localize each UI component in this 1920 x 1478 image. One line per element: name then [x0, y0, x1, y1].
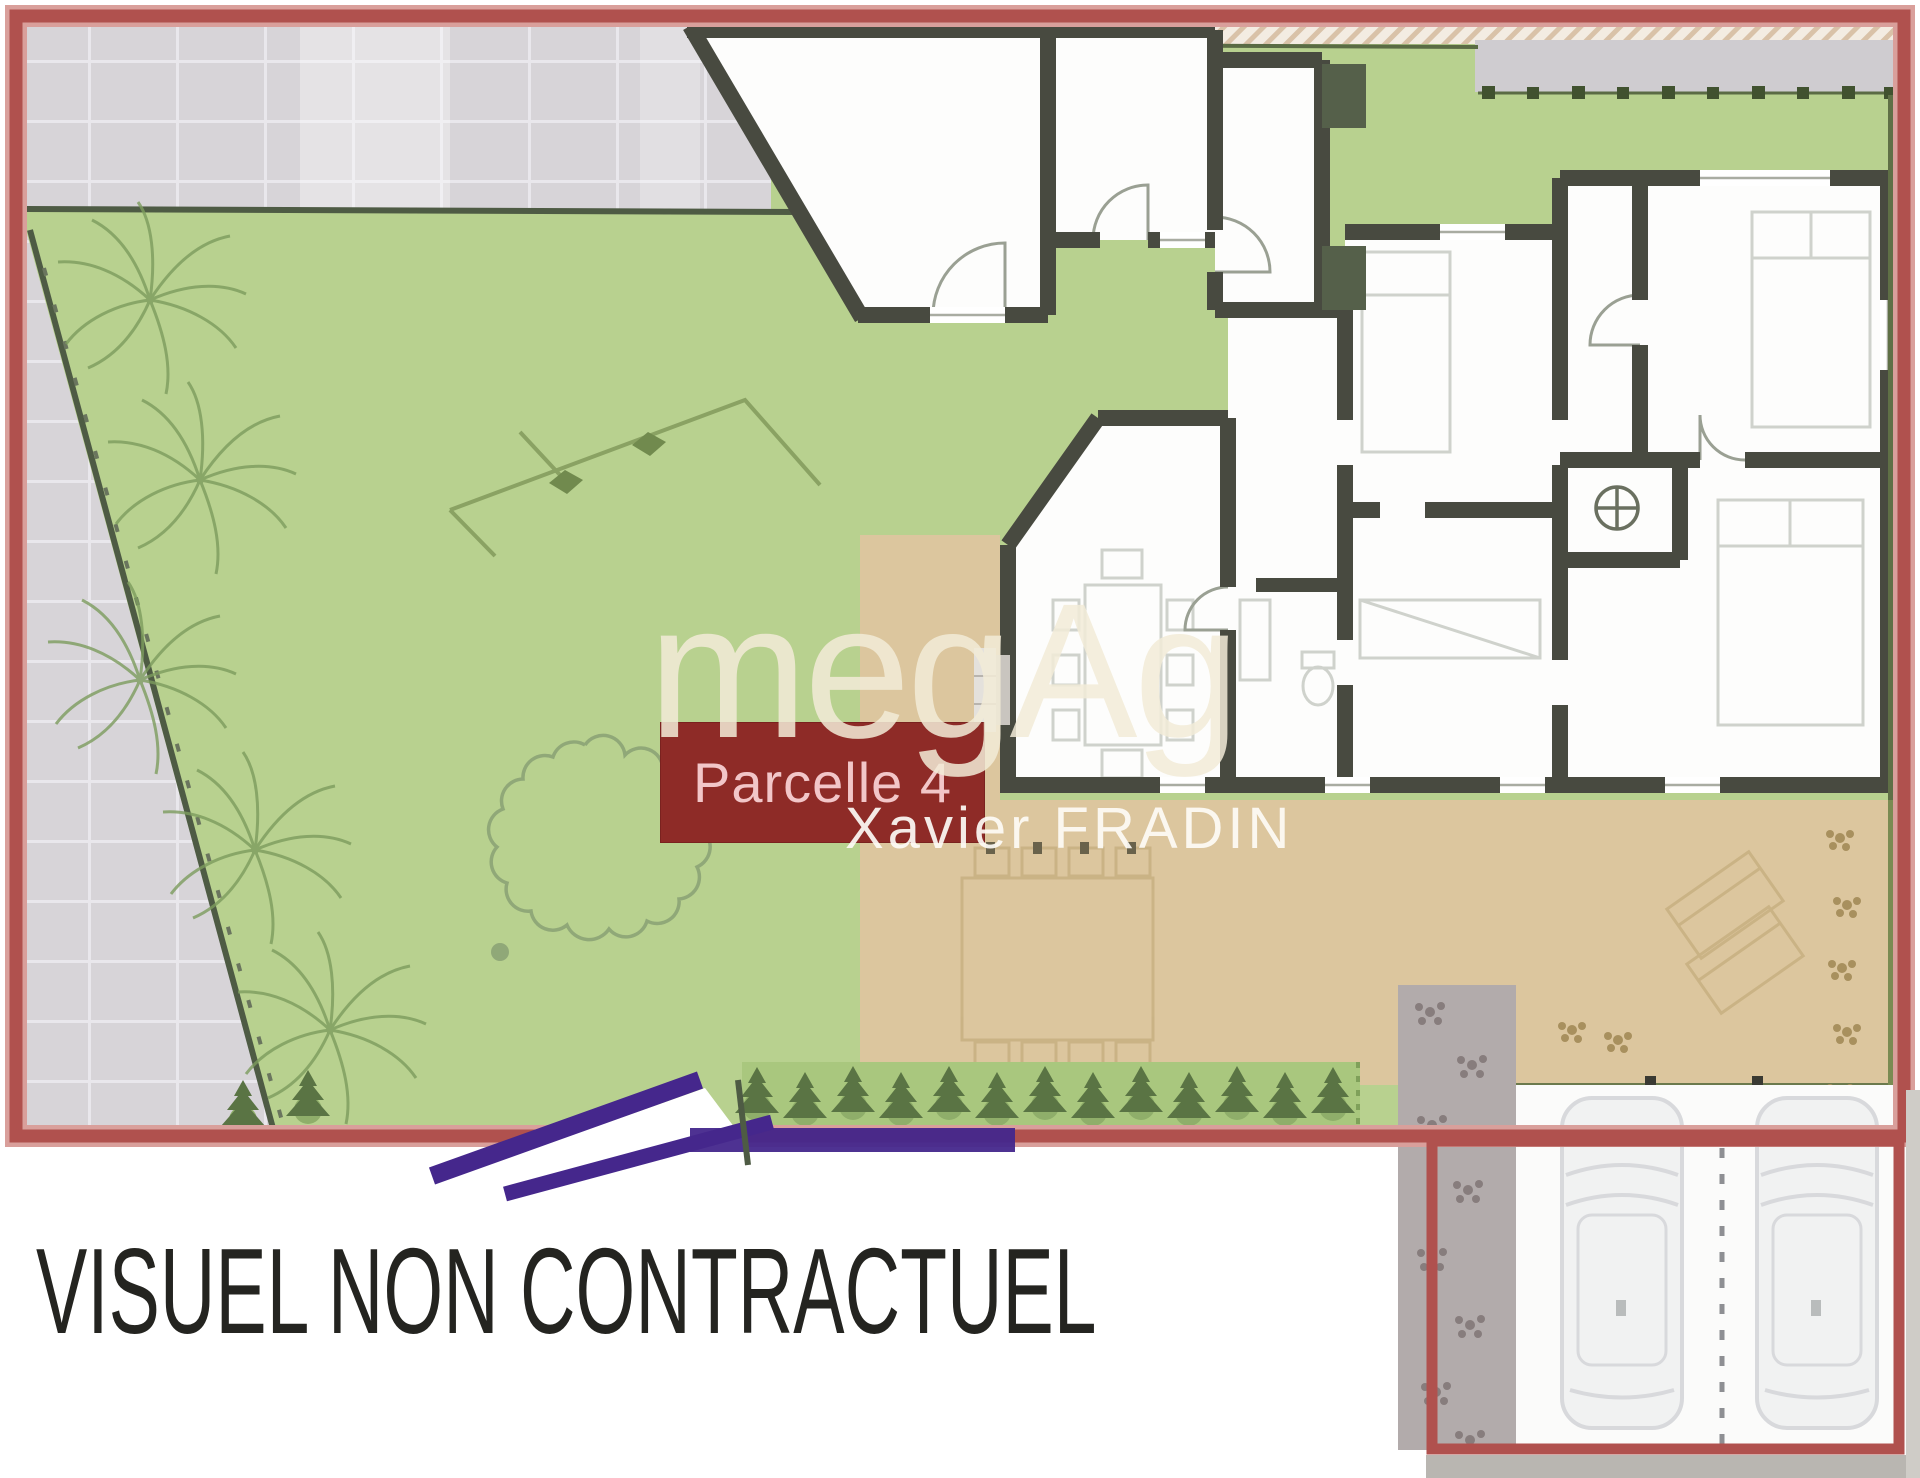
bath-symbol	[1596, 487, 1638, 529]
entry-porch	[974, 648, 1010, 732]
hedge-row	[735, 1062, 1360, 1132]
disclaimer-text: VISUEL NON CONTRACTUEL	[36, 1230, 1097, 1352]
site-plan-page: Parcelle 4 megAg Xavier FRADIN VISUEL NO…	[0, 0, 1920, 1478]
car	[1757, 1098, 1877, 1428]
car	[1562, 1098, 1682, 1428]
paved-road-band	[26, 26, 800, 212]
parcel-label: Parcelle 4	[660, 722, 985, 843]
